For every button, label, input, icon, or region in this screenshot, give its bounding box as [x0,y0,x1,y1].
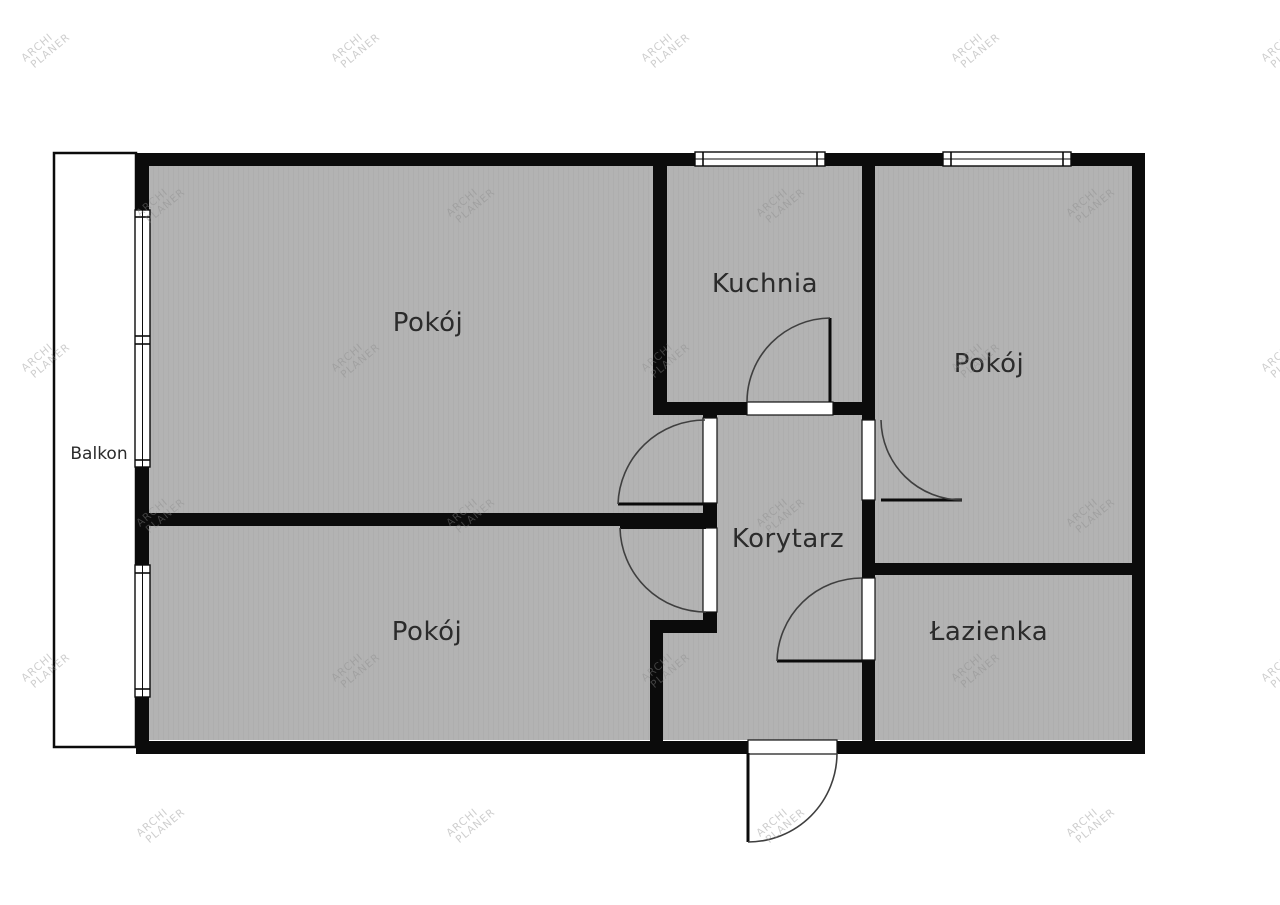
room-korytarz [717,415,862,740]
watermark-text: ARCHIPLANER [134,798,187,848]
watermark-text: ARCHIPLANER [329,23,382,73]
opening-corridor-to-lazienka [862,578,875,660]
wall-right [1132,153,1145,754]
floor-plan-drawing: Pokój Kuchnia Pokój Korytarz Pokój Łazie… [0,0,1280,905]
window-kitchen-top [695,152,825,166]
opening-corridor-to-pokoj-tl [703,418,717,503]
label-pokoj-bl: Pokój [392,617,462,647]
opening-corridor-to-pokoj-tr [862,420,875,500]
watermark-text: ARCHIPLANER [1259,333,1280,383]
window-balcony-upper [135,210,150,467]
opening-corridor-to-pokoj-bl [703,528,717,612]
window-pokoj-tr-top [943,152,1071,166]
opening-kuchnia-door [747,402,833,415]
wall-bottom [136,741,1145,754]
opening-entrance-door [748,740,837,754]
window-balcony-lower [135,565,150,697]
watermark-text: ARCHIPLANER [949,23,1002,73]
watermark-text: ARCHIPLANER [19,23,72,73]
wall-bathroom-top [862,563,1132,575]
room-areas [149,166,1132,740]
label-korytarz: Korytarz [732,524,844,554]
label-balkon: Balkon [70,444,127,464]
watermark-text: ARCHIPLANER [639,23,692,73]
watermark-text: ARCHIPLANER [444,798,497,848]
wall-left-rooms-divider [149,513,717,526]
room-lazienka [875,575,1132,740]
watermark-text: ARCHIPLANER [1259,23,1280,73]
watermark-text: ARCHIPLANER [1064,798,1117,848]
floor-plan-page: Pokój Kuchnia Pokój Korytarz Pokój Łazie… [0,0,1280,905]
label-pokoj-tl: Pokój [393,308,463,338]
label-kuchnia: Kuchnia [712,269,818,299]
watermark-text: ARCHIPLANER [1259,643,1280,693]
room-pokoj-tl [149,166,653,513]
label-lazienka: Łazienka [929,617,1048,647]
